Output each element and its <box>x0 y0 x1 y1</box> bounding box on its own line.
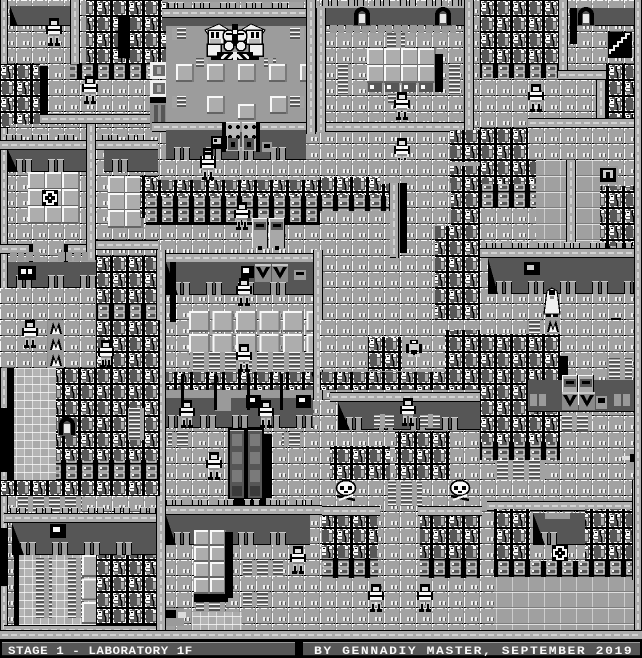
svg-text:STAGE 1 - LABORATORY 1F: STAGE 1 - LABORATORY 1F <box>8 646 193 658</box>
svg-text:BY GENNADIY MASTER, SEPTEMBER: BY GENNADIY MASTER, SEPTEMBER 2019 <box>314 645 633 658</box>
